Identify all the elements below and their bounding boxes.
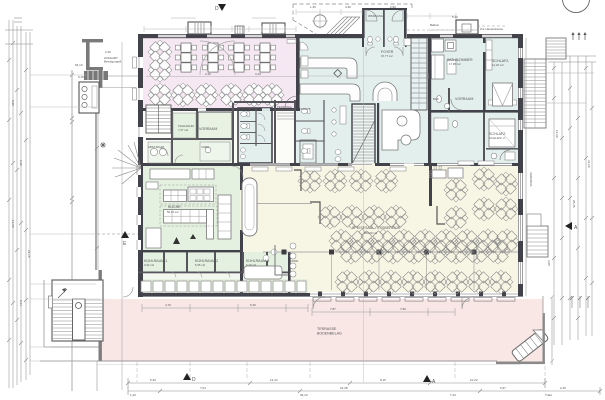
svg-text:9,44: 9,44 xyxy=(19,300,23,306)
svg-text:6,29 m2: 6,29 m2 xyxy=(246,263,257,267)
svg-text:3,65: 3,65 xyxy=(547,260,551,266)
svg-text:2,40: 2,40 xyxy=(205,72,211,76)
svg-text:SCHLAFZ.: SCHLAFZ. xyxy=(492,59,509,63)
svg-text:63,10: 63,10 xyxy=(75,63,83,67)
svg-text:31,20: 31,20 xyxy=(587,160,591,168)
svg-text:Bewegungsfl.: Bewegungsfl. xyxy=(104,60,122,64)
svg-text:1,35: 1,35 xyxy=(310,5,316,9)
svg-text:2,45: 2,45 xyxy=(560,386,566,390)
svg-text:TERRASSE: TERRASSE xyxy=(317,327,337,331)
svg-text:56,15 m2: 56,15 m2 xyxy=(167,210,179,214)
svg-text:Zur Hauptstrasse: Zur Hauptstrasse xyxy=(480,27,503,31)
svg-text:6,30: 6,30 xyxy=(250,303,256,307)
svg-text:14,20 m2: 14,20 m2 xyxy=(492,63,504,67)
svg-text:7,44: 7,44 xyxy=(450,393,456,397)
svg-text:KÜHLRAUM 3: KÜHLRAUM 3 xyxy=(246,259,269,263)
svg-text:2,90: 2,90 xyxy=(390,5,396,9)
svg-text:VORRAUM: VORRAUM xyxy=(455,97,473,101)
svg-text:8,25: 8,25 xyxy=(11,100,15,106)
svg-text:VORR. 5: VORR. 5 xyxy=(299,107,311,111)
svg-text:VORRAUM: VORRAUM xyxy=(199,127,217,131)
svg-text:D: D xyxy=(192,377,196,383)
svg-text:22,15: 22,15 xyxy=(27,250,31,258)
svg-text:12,44: 12,44 xyxy=(270,378,278,382)
svg-text:ABST.RAUM: ABST.RAUM xyxy=(148,145,165,149)
svg-text:9,15: 9,15 xyxy=(78,75,84,79)
svg-text:350,00 m2: 350,00 m2 xyxy=(364,231,378,235)
svg-text:VERANDA: VERANDA xyxy=(529,172,533,187)
svg-text:6,12: 6,12 xyxy=(19,160,23,166)
svg-text:4,30: 4,30 xyxy=(345,5,351,9)
svg-text:KÜCHE: KÜCHE xyxy=(168,205,181,209)
svg-text:FOYER: FOYER xyxy=(381,50,394,54)
svg-text:1,20: 1,20 xyxy=(130,393,136,397)
svg-text:24,38: 24,38 xyxy=(340,386,348,390)
svg-text:SCHLAFZ. 2: SCHLAFZ. 2 xyxy=(489,136,505,140)
svg-text:Balkon: Balkon xyxy=(430,23,440,27)
svg-text:KÜHLRAUM 2: KÜHLRAUM 2 xyxy=(195,259,218,263)
svg-text:15,77 m2: 15,77 m2 xyxy=(381,54,393,58)
svg-text:7,90: 7,90 xyxy=(400,307,406,311)
svg-text:FÄK.RAUM: FÄK.RAUM xyxy=(237,107,252,111)
svg-text:5,30: 5,30 xyxy=(150,378,156,382)
svg-text:Trakt: Trakt xyxy=(545,393,552,397)
svg-text:14,30: 14,30 xyxy=(11,220,15,228)
svg-text:3,10: 3,10 xyxy=(255,72,261,76)
svg-text:VORR.: VORR. xyxy=(290,259,299,263)
svg-text:WOHNZIMMER: WOHNZIMMER xyxy=(447,58,473,62)
svg-text:5,10: 5,10 xyxy=(452,15,458,19)
svg-text:17,95 m2: 17,95 m2 xyxy=(449,62,461,66)
svg-text:7,87: 7,87 xyxy=(330,307,336,311)
svg-text:BODENBELAG: BODENBELAG xyxy=(317,332,342,336)
svg-text:VORR.: VORR. xyxy=(201,145,210,149)
svg-text:SCHLAFZ.: SCHLAFZ. xyxy=(489,132,506,136)
svg-text:7,64: 7,64 xyxy=(200,386,206,390)
svg-text:KÜHLRAUM 1: KÜHLRAUM 1 xyxy=(144,259,167,263)
svg-text:PERSONAL: PERSONAL xyxy=(277,105,293,109)
svg-text:4,70: 4,70 xyxy=(165,303,171,307)
svg-text:8,15: 8,15 xyxy=(380,378,386,382)
svg-text:3,92 m2: 3,92 m2 xyxy=(144,263,155,267)
svg-text:5,95 m2: 5,95 m2 xyxy=(195,263,206,267)
svg-text:BAD: BAD xyxy=(433,97,439,101)
svg-text:2,46: 2,46 xyxy=(105,50,111,54)
svg-text:36,10: 36,10 xyxy=(300,393,308,397)
svg-text:28,45: 28,45 xyxy=(572,200,576,208)
svg-text:7,07 m2: 7,07 m2 xyxy=(178,128,189,132)
svg-text:5,97: 5,97 xyxy=(500,386,506,390)
svg-text:12,30: 12,30 xyxy=(555,130,559,138)
svg-text:WINDFANG: WINDFANG xyxy=(368,14,383,18)
svg-text:SPEISESAAL - ESSBEREICH: SPEISESAAL - ESSBEREICH xyxy=(352,226,401,230)
svg-text:10,22: 10,22 xyxy=(470,378,478,382)
svg-text:D: D xyxy=(215,6,219,12)
